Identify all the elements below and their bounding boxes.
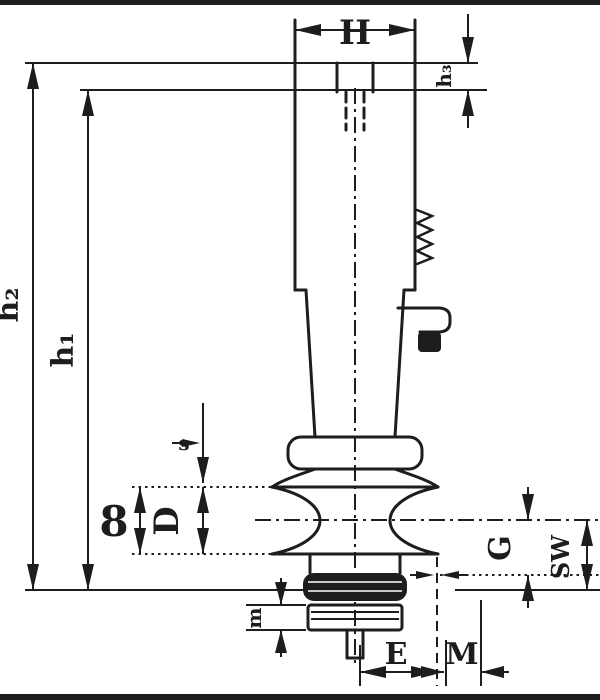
dim-h3 <box>462 14 474 128</box>
dim-label-M: M <box>445 637 478 672</box>
dim-D <box>197 487 209 554</box>
dim-label-8: 8 <box>99 497 128 546</box>
page-bottom-border <box>0 694 600 700</box>
dim-label-s: s <box>178 431 189 455</box>
dim-h2 <box>27 63 39 590</box>
dim-label-G: G <box>483 535 518 561</box>
dim-label-h2: h₂ <box>0 288 26 323</box>
dim-label-D: D <box>147 506 187 535</box>
dim-h1 <box>82 90 94 590</box>
dim-label-H: H <box>339 13 371 53</box>
drawing-page: H h₃ h₂ h₁ s 8 D G SW m E M <box>0 0 600 700</box>
page-top-border <box>0 0 600 5</box>
dim-label-h3: h₃ <box>432 64 456 87</box>
gasket-nut <box>303 573 407 601</box>
dim-label-m: m <box>242 607 266 628</box>
technical-drawing: H h₃ h₂ h₁ s 8 D G SW m E M <box>0 0 600 700</box>
dim-label-h1: h₁ <box>46 333 81 368</box>
dim-8 <box>134 487 146 554</box>
tapered-body <box>306 290 450 437</box>
side-clip <box>398 308 450 332</box>
side-clip-base <box>418 332 441 352</box>
knob <box>295 20 432 290</box>
dim-label-SW: SW <box>546 534 575 579</box>
knurl-marks <box>417 210 432 264</box>
dim-label-E: E <box>385 637 408 672</box>
dim-SW <box>581 520 593 590</box>
